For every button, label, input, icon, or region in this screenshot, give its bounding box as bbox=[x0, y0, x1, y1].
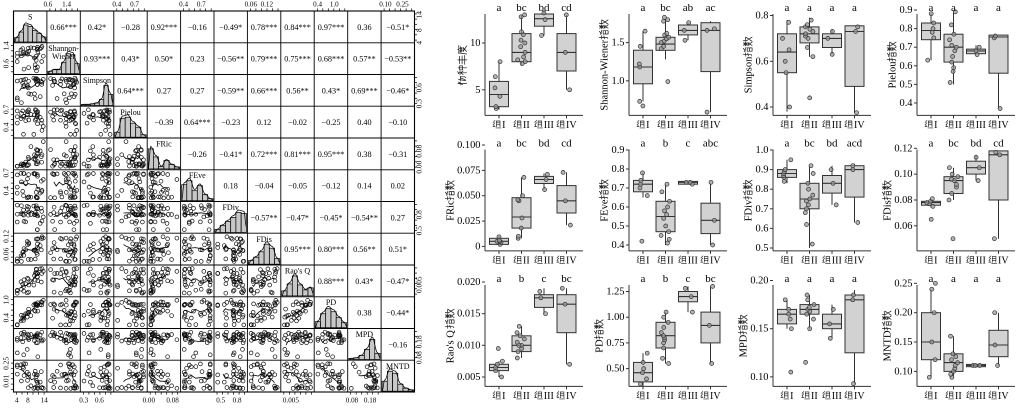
svg-text:a: a bbox=[830, 2, 835, 14]
svg-text:0.08: 0.08 bbox=[894, 195, 912, 206]
svg-text:−0.56**: −0.56** bbox=[217, 55, 244, 64]
svg-text:1.0: 1.0 bbox=[2, 295, 11, 305]
svg-text:a: a bbox=[929, 273, 934, 285]
svg-text:−0.45*: −0.45* bbox=[319, 213, 342, 222]
svg-text:II: II bbox=[955, 391, 962, 402]
svg-text:0.5: 0.5 bbox=[612, 221, 625, 232]
svg-text:c: c bbox=[686, 273, 691, 285]
svg-text:c: c bbox=[542, 273, 547, 285]
svg-text:0.40: 0.40 bbox=[357, 118, 371, 127]
svg-text:c: c bbox=[686, 138, 691, 150]
svg-text:0.9: 0.9 bbox=[612, 145, 625, 156]
svg-text:0.3: 0.3 bbox=[415, 99, 424, 109]
svg-text:−0.57**: −0.57** bbox=[251, 213, 278, 222]
svg-text:0.43*: 0.43* bbox=[355, 277, 373, 286]
svg-text:0.12: 0.12 bbox=[2, 230, 11, 243]
svg-text:−0.25: −0.25 bbox=[322, 118, 341, 127]
svg-text:0.005: 0.005 bbox=[283, 397, 299, 405]
svg-text:a: a bbox=[852, 273, 857, 285]
svg-text:0.18: 0.18 bbox=[415, 335, 424, 348]
svg-text:bc: bc bbox=[804, 138, 815, 150]
svg-text:a: a bbox=[641, 273, 646, 285]
svg-text:0.7: 0.7 bbox=[197, 1, 206, 9]
svg-text:0: 0 bbox=[475, 241, 480, 252]
svg-text:b: b bbox=[663, 138, 669, 150]
svg-text:0.38: 0.38 bbox=[357, 309, 371, 318]
svg-text:0.7: 0.7 bbox=[2, 168, 11, 178]
svg-text:FDis: FDis bbox=[256, 235, 272, 244]
svg-text:a: a bbox=[785, 273, 790, 285]
svg-text:0.6: 0.6 bbox=[95, 397, 104, 405]
svg-text:a: a bbox=[951, 273, 956, 285]
svg-text:MPD: MPD bbox=[739, 334, 750, 357]
svg-text:0.80***: 0.80*** bbox=[318, 245, 345, 254]
svg-text:III: III bbox=[976, 120, 986, 131]
svg-text:1.00: 1.00 bbox=[606, 312, 624, 323]
svg-text:1.5: 1.5 bbox=[612, 38, 625, 49]
svg-text:II: II bbox=[667, 120, 674, 131]
svg-text:FEve: FEve bbox=[189, 171, 206, 180]
svg-text:1.25: 1.25 bbox=[606, 287, 624, 298]
svg-text:−0.16: −0.16 bbox=[188, 23, 207, 32]
svg-text:0.14: 0.14 bbox=[357, 182, 371, 191]
svg-text:ab: ab bbox=[683, 2, 694, 14]
svg-text:0.4: 0.4 bbox=[612, 240, 626, 251]
svg-text:0.08: 0.08 bbox=[415, 145, 424, 158]
svg-text:III: III bbox=[544, 255, 554, 266]
svg-text:0.00: 0.00 bbox=[143, 397, 156, 405]
svg-text:0.8: 0.8 bbox=[900, 24, 913, 35]
svg-text:0.10: 0.10 bbox=[379, 1, 392, 9]
svg-text:0.5: 0.5 bbox=[216, 397, 225, 405]
svg-text:0.6: 0.6 bbox=[612, 202, 625, 213]
svg-text:III: III bbox=[544, 120, 554, 131]
svg-text:0.20: 0.20 bbox=[750, 276, 768, 287]
svg-text:cd: cd bbox=[993, 138, 1004, 150]
svg-text:III: III bbox=[832, 255, 842, 266]
svg-text:−0.41*: −0.41* bbox=[219, 150, 242, 159]
svg-text:0.01: 0.01 bbox=[2, 374, 11, 387]
svg-text:0.18: 0.18 bbox=[224, 182, 238, 191]
svg-text:0.050: 0.050 bbox=[457, 191, 480, 202]
svg-text:IV: IV bbox=[566, 391, 577, 402]
svg-text:0.8: 0.8 bbox=[415, 210, 424, 220]
svg-text:bd: bd bbox=[539, 2, 551, 14]
svg-text:0.43*: 0.43* bbox=[121, 55, 139, 64]
svg-text:a: a bbox=[497, 138, 502, 150]
svg-text:FEve: FEve bbox=[600, 199, 611, 222]
svg-text:0.57**: 0.57** bbox=[353, 55, 376, 64]
svg-text:0.08: 0.08 bbox=[415, 351, 424, 364]
svg-text:0.8: 0.8 bbox=[756, 184, 769, 195]
svg-text:0.66***: 0.66*** bbox=[251, 86, 278, 95]
svg-text:0.27: 0.27 bbox=[391, 213, 405, 222]
svg-text:FDiv: FDiv bbox=[744, 199, 755, 221]
svg-text:0.7: 0.7 bbox=[130, 1, 139, 9]
svg-text:0.100: 0.100 bbox=[457, 140, 480, 151]
svg-text:Shannon-Wiener: Shannon-Wiener bbox=[600, 39, 611, 110]
svg-text:−0.54**: −0.54** bbox=[351, 213, 378, 222]
svg-text:0.43*: 0.43* bbox=[322, 86, 340, 95]
svg-text:ac: ac bbox=[706, 2, 716, 14]
svg-text:0.9: 0.9 bbox=[756, 165, 769, 176]
svg-text:a: a bbox=[996, 273, 1001, 285]
svg-text:III: III bbox=[688, 391, 698, 402]
svg-text:bc: bc bbox=[705, 273, 716, 285]
svg-text:I: I bbox=[790, 255, 793, 266]
svg-text:0.4: 0.4 bbox=[2, 186, 11, 196]
svg-text:4: 4 bbox=[415, 41, 424, 45]
svg-text:Pielou: Pielou bbox=[888, 61, 899, 89]
svg-text:MNTD: MNTD bbox=[386, 362, 410, 371]
svg-text:II: II bbox=[523, 120, 530, 131]
svg-text:0.92***: 0.92*** bbox=[151, 23, 178, 32]
svg-text:0.51*: 0.51* bbox=[389, 245, 407, 254]
svg-text:II: II bbox=[955, 255, 962, 266]
svg-text:IV: IV bbox=[998, 120, 1009, 131]
svg-text:IV: IV bbox=[998, 391, 1009, 402]
svg-text:0.25: 0.25 bbox=[894, 278, 912, 289]
svg-text:II: II bbox=[955, 120, 962, 131]
svg-text:−0.53**: −0.53** bbox=[384, 55, 411, 64]
svg-text:0.12: 0.12 bbox=[257, 118, 271, 127]
svg-text:4: 4 bbox=[15, 397, 19, 405]
svg-text:0.3: 0.3 bbox=[79, 397, 88, 405]
svg-text:−0.39: −0.39 bbox=[154, 118, 173, 127]
svg-text:8: 8 bbox=[26, 397, 30, 405]
svg-text:I: I bbox=[934, 120, 937, 131]
svg-text:0.075: 0.075 bbox=[457, 165, 480, 176]
svg-text:0.25: 0.25 bbox=[396, 1, 409, 9]
svg-text:0.25: 0.25 bbox=[2, 357, 11, 370]
svg-text:0.005: 0.005 bbox=[415, 276, 424, 293]
svg-text:I: I bbox=[790, 120, 793, 131]
svg-text:5: 5 bbox=[475, 85, 480, 96]
svg-text:IV: IV bbox=[854, 255, 865, 266]
svg-text:a: a bbox=[852, 2, 857, 14]
svg-text:0.12: 0.12 bbox=[894, 143, 912, 154]
svg-text:0.69***: 0.69*** bbox=[351, 86, 378, 95]
svg-text:a: a bbox=[497, 273, 502, 285]
svg-text:0.10: 0.10 bbox=[894, 366, 912, 377]
svg-text:a: a bbox=[785, 138, 790, 150]
svg-text:0.64***: 0.64*** bbox=[184, 118, 211, 127]
svg-text:8: 8 bbox=[415, 28, 424, 32]
svg-text:0.66***: 0.66*** bbox=[50, 23, 77, 32]
svg-text:III: III bbox=[832, 120, 842, 131]
svg-text:II: II bbox=[523, 255, 530, 266]
svg-text:−0.59**: −0.59** bbox=[217, 86, 244, 95]
svg-text:PD: PD bbox=[326, 298, 336, 307]
svg-text:0.23: 0.23 bbox=[190, 55, 204, 64]
svg-text:10: 10 bbox=[470, 38, 480, 49]
svg-text:FDis: FDis bbox=[883, 200, 894, 220]
svg-text:Rao's Q: Rao's Q bbox=[446, 330, 457, 364]
svg-text:0.5: 0.5 bbox=[900, 79, 913, 90]
svg-text:S: S bbox=[28, 13, 32, 22]
svg-text:0.015: 0.015 bbox=[457, 309, 480, 320]
svg-text:−0.47*: −0.47* bbox=[386, 277, 409, 286]
svg-text:0.95***: 0.95*** bbox=[284, 245, 311, 254]
svg-text:II: II bbox=[811, 255, 818, 266]
svg-text:I: I bbox=[502, 120, 505, 131]
svg-text:0.9: 0.9 bbox=[900, 5, 913, 16]
svg-text:0.95***: 0.95*** bbox=[318, 150, 345, 159]
svg-text:IV: IV bbox=[710, 255, 721, 266]
svg-text:I: I bbox=[646, 255, 649, 266]
svg-text:0.4: 0.4 bbox=[2, 313, 11, 323]
svg-text:a: a bbox=[929, 138, 934, 150]
svg-text:I: I bbox=[502, 391, 505, 402]
svg-text:bd: bd bbox=[971, 138, 983, 150]
svg-text:bc: bc bbox=[660, 2, 671, 14]
svg-text:III: III bbox=[976, 255, 986, 266]
svg-text:0.38: 0.38 bbox=[357, 150, 371, 159]
svg-text:Simpson: Simpson bbox=[744, 56, 755, 94]
svg-text:0.020: 0.020 bbox=[457, 277, 480, 288]
svg-text:0.005: 0.005 bbox=[457, 372, 480, 383]
svg-text:0.42*: 0.42* bbox=[88, 23, 106, 32]
svg-text:1.4: 1.4 bbox=[62, 1, 71, 9]
svg-text:PD: PD bbox=[595, 339, 606, 353]
svg-text:0.6: 0.6 bbox=[756, 223, 769, 234]
svg-text:0.02: 0.02 bbox=[391, 182, 405, 191]
svg-text:FRic: FRic bbox=[156, 140, 172, 149]
svg-text:0.10: 0.10 bbox=[894, 169, 912, 180]
svg-text:I: I bbox=[790, 391, 793, 402]
svg-text:−0.16: −0.16 bbox=[388, 340, 407, 349]
svg-text:−0.46*: −0.46* bbox=[386, 86, 409, 95]
svg-text:1.0: 1.0 bbox=[756, 145, 769, 156]
svg-text:III: III bbox=[688, 255, 698, 266]
svg-text:bc: bc bbox=[561, 273, 572, 285]
svg-text:0.6: 0.6 bbox=[900, 61, 913, 72]
svg-text:0.84***: 0.84*** bbox=[284, 23, 311, 32]
svg-text:0.6: 0.6 bbox=[415, 83, 424, 93]
svg-text:FRic: FRic bbox=[446, 200, 457, 221]
svg-text:0.50: 0.50 bbox=[606, 364, 624, 375]
svg-text:0.00: 0.00 bbox=[415, 160, 424, 173]
svg-text:Wiener: Wiener bbox=[52, 52, 76, 61]
svg-text:IV: IV bbox=[566, 120, 577, 131]
svg-text:IV: IV bbox=[566, 255, 577, 266]
svg-text:0.025: 0.025 bbox=[457, 216, 480, 227]
svg-text:0.7: 0.7 bbox=[612, 183, 625, 194]
svg-text:acd: acd bbox=[847, 138, 863, 150]
svg-text:a: a bbox=[807, 2, 812, 14]
svg-text:0.72***: 0.72*** bbox=[251, 150, 278, 159]
svg-text:−0.05: −0.05 bbox=[288, 182, 307, 191]
svg-text:−0.26: −0.26 bbox=[188, 150, 207, 159]
svg-text:−0.04: −0.04 bbox=[255, 182, 274, 191]
svg-text:0.15: 0.15 bbox=[750, 324, 768, 335]
svg-text:0.6: 0.6 bbox=[2, 59, 11, 69]
svg-text:IV: IV bbox=[998, 255, 1009, 266]
svg-text:a: a bbox=[807, 273, 812, 285]
svg-text:0.93***: 0.93*** bbox=[84, 55, 111, 64]
svg-text:0.4: 0.4 bbox=[2, 122, 11, 132]
svg-text:0.4: 0.4 bbox=[900, 98, 914, 109]
svg-text:0.10: 0.10 bbox=[750, 372, 768, 383]
svg-text:0.7: 0.7 bbox=[900, 42, 913, 53]
svg-text:a: a bbox=[951, 2, 956, 14]
svg-text:0.20: 0.20 bbox=[894, 308, 912, 319]
svg-text:0.8: 0.8 bbox=[756, 11, 769, 22]
svg-text:−0.47*: −0.47* bbox=[286, 213, 309, 222]
svg-text:0.68***: 0.68*** bbox=[318, 55, 345, 64]
svg-text:I: I bbox=[646, 391, 649, 402]
svg-text:0.4: 0.4 bbox=[313, 1, 322, 9]
svg-text:I: I bbox=[502, 255, 505, 266]
svg-text:0.06: 0.06 bbox=[2, 247, 11, 260]
svg-text:MNTD: MNTD bbox=[883, 330, 894, 361]
svg-text:II: II bbox=[523, 391, 530, 402]
svg-text:0.4: 0.4 bbox=[756, 102, 770, 113]
svg-text:14: 14 bbox=[41, 397, 49, 405]
svg-text:0.8: 0.8 bbox=[233, 397, 242, 405]
svg-text:III: III bbox=[976, 391, 986, 402]
svg-text:FDiv: FDiv bbox=[222, 203, 238, 212]
svg-text:IV: IV bbox=[710, 391, 721, 402]
svg-text:0.18: 0.18 bbox=[364, 397, 377, 405]
svg-text:a: a bbox=[996, 2, 1001, 14]
svg-text:bd: bd bbox=[827, 138, 839, 150]
svg-text:III: III bbox=[544, 391, 554, 402]
svg-text:0.08: 0.08 bbox=[346, 397, 359, 405]
svg-text:I: I bbox=[934, 391, 937, 402]
svg-text:0.12: 0.12 bbox=[261, 1, 274, 9]
svg-text:a: a bbox=[929, 2, 934, 14]
svg-text:a: a bbox=[974, 273, 979, 285]
svg-text:bd: bd bbox=[539, 138, 551, 150]
svg-text:0.36: 0.36 bbox=[357, 23, 371, 32]
svg-text:abc: abc bbox=[703, 138, 718, 150]
svg-text:IV: IV bbox=[710, 120, 721, 131]
svg-text:a: a bbox=[830, 273, 835, 285]
svg-text:I: I bbox=[646, 120, 649, 131]
svg-text:a: a bbox=[641, 138, 646, 150]
svg-text:bc: bc bbox=[948, 138, 959, 150]
svg-text:−0.28: −0.28 bbox=[121, 23, 140, 32]
svg-text:III: III bbox=[832, 391, 842, 402]
svg-text:1.0: 1.0 bbox=[612, 76, 625, 87]
svg-text:1.4: 1.4 bbox=[2, 41, 11, 51]
svg-text:0.6: 0.6 bbox=[756, 56, 769, 67]
svg-text:−0.44*: −0.44* bbox=[386, 309, 409, 318]
svg-text:Simpson: Simpson bbox=[83, 76, 111, 85]
svg-text:0.75***: 0.75*** bbox=[284, 55, 311, 64]
svg-text:II: II bbox=[667, 391, 674, 402]
svg-text:IV: IV bbox=[854, 391, 865, 402]
svg-text:0.81***: 0.81*** bbox=[284, 150, 311, 159]
svg-text:−0.10: −0.10 bbox=[388, 118, 407, 127]
svg-text:−0.51*: −0.51* bbox=[386, 23, 409, 32]
svg-text:0.8: 0.8 bbox=[612, 164, 625, 175]
svg-text:0.6: 0.6 bbox=[43, 1, 52, 9]
svg-text:MPD: MPD bbox=[356, 330, 374, 339]
svg-text:0.08: 0.08 bbox=[166, 397, 179, 405]
svg-text:0.64***: 0.64*** bbox=[117, 86, 144, 95]
svg-text:a: a bbox=[497, 2, 502, 14]
svg-text:a: a bbox=[785, 2, 790, 14]
svg-text:0.7: 0.7 bbox=[2, 104, 11, 114]
svg-text:a: a bbox=[974, 2, 979, 14]
svg-text:a: a bbox=[641, 2, 646, 14]
svg-text:0.79***: 0.79*** bbox=[251, 55, 278, 64]
svg-text:Pielou: Pielou bbox=[120, 108, 140, 117]
svg-text:0.88***: 0.88*** bbox=[318, 277, 345, 286]
svg-text:0.4: 0.4 bbox=[179, 1, 188, 9]
svg-text:0.4: 0.4 bbox=[112, 1, 121, 9]
svg-text:0.56**: 0.56** bbox=[286, 86, 309, 95]
svg-text:0.97***: 0.97*** bbox=[318, 23, 345, 32]
svg-text:−0.31: −0.31 bbox=[388, 150, 407, 159]
svg-text:0.5: 0.5 bbox=[415, 226, 424, 236]
svg-text:−0.12: −0.12 bbox=[322, 182, 341, 191]
svg-text:0.56**: 0.56** bbox=[353, 245, 376, 254]
svg-text:0.27: 0.27 bbox=[157, 86, 171, 95]
svg-text:0.78***: 0.78*** bbox=[251, 23, 278, 32]
svg-text:−0.49*: −0.49* bbox=[219, 23, 242, 32]
svg-text:IV: IV bbox=[854, 120, 865, 131]
svg-text:0.7: 0.7 bbox=[756, 204, 769, 215]
svg-text:0.27: 0.27 bbox=[190, 86, 204, 95]
svg-text:0.06: 0.06 bbox=[245, 1, 258, 9]
svg-text:1.0: 1.0 bbox=[330, 1, 339, 9]
svg-text:bc: bc bbox=[516, 138, 527, 150]
svg-text:bc: bc bbox=[516, 2, 527, 14]
svg-text:b: b bbox=[519, 273, 525, 285]
svg-text:0.15: 0.15 bbox=[894, 337, 912, 348]
svg-text:I: I bbox=[934, 255, 937, 266]
svg-text:0.50*: 0.50* bbox=[155, 55, 173, 64]
svg-text:cd: cd bbox=[561, 138, 572, 150]
svg-text:II: II bbox=[667, 255, 674, 266]
svg-text:cd: cd bbox=[561, 2, 572, 14]
svg-text:Rao's Q: Rao's Q bbox=[285, 267, 310, 276]
svg-text:b: b bbox=[663, 273, 669, 285]
svg-text:II: II bbox=[811, 120, 818, 131]
svg-text:0.5: 0.5 bbox=[756, 243, 769, 254]
svg-text:II: II bbox=[811, 391, 818, 402]
svg-text:−0.02: −0.02 bbox=[288, 118, 307, 127]
svg-text:0.06: 0.06 bbox=[894, 221, 912, 232]
svg-text:−0.23: −0.23 bbox=[221, 118, 240, 127]
svg-text:0.010: 0.010 bbox=[457, 340, 480, 351]
svg-text:III: III bbox=[688, 120, 698, 131]
svg-text:14: 14 bbox=[415, 11, 424, 19]
svg-text:0.75: 0.75 bbox=[606, 338, 624, 349]
